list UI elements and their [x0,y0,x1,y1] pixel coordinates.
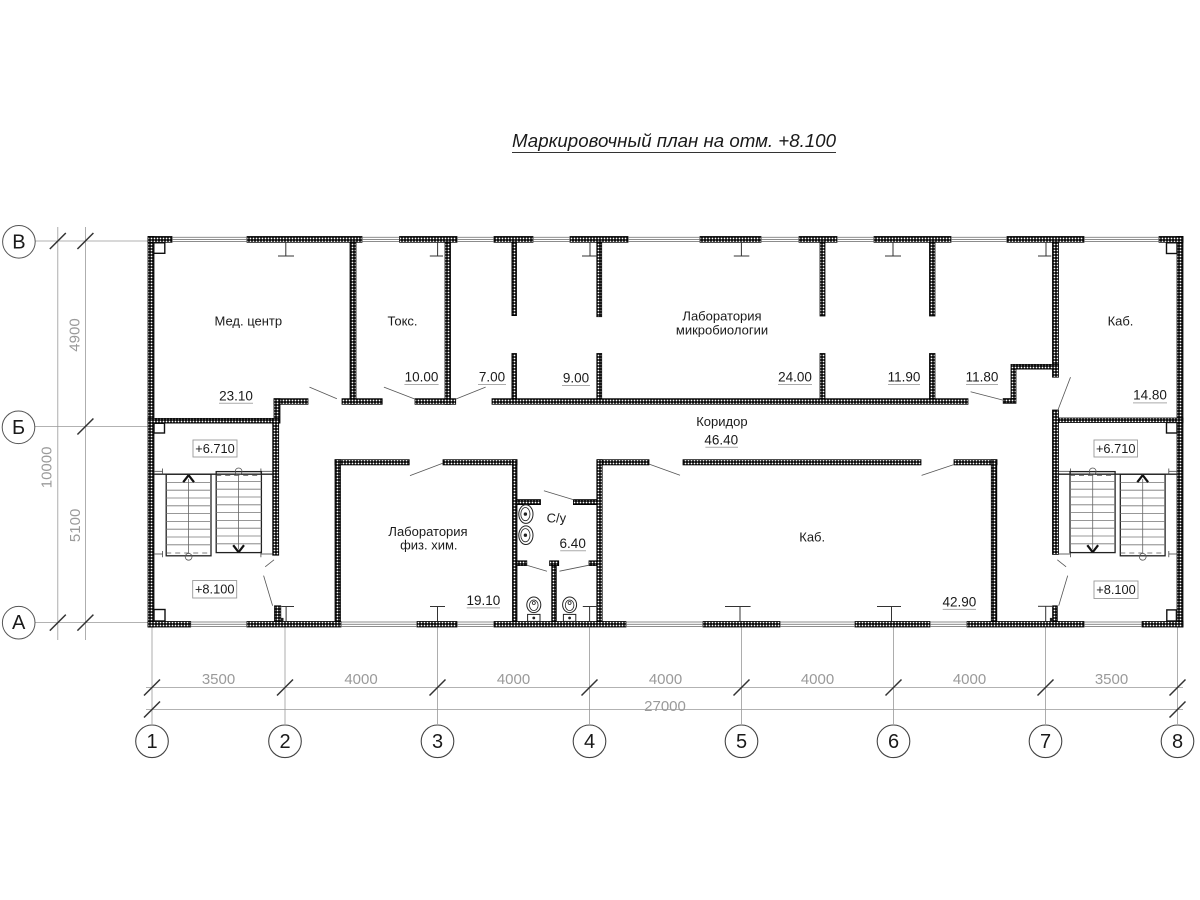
svg-text:10000: 10000 [39,447,56,489]
svg-text:6.40: 6.40 [560,536,586,551]
svg-text:Мед. центр: Мед. центр [214,314,282,329]
svg-text:19.10: 19.10 [467,593,501,608]
svg-text:3500: 3500 [202,671,235,688]
svg-text:физ. хим.: физ. хим. [400,537,457,552]
svg-text:4: 4 [584,731,595,753]
svg-text:Маркировочный план на отм. +8.: Маркировочный план на отм. +8.100 [512,130,837,151]
svg-text:2: 2 [279,731,290,753]
svg-text:Коридор: Коридор [696,414,747,429]
svg-text:14.80: 14.80 [1133,387,1167,402]
svg-text:С/у: С/у [547,511,567,526]
svg-text:4000: 4000 [953,671,986,688]
svg-text:+8.100: +8.100 [1096,582,1136,597]
svg-text:11.90: 11.90 [888,370,921,385]
svg-text:9.00: 9.00 [563,371,589,386]
svg-text:23.10: 23.10 [219,388,253,403]
svg-text:+6.710: +6.710 [195,441,235,456]
svg-text:4900: 4900 [67,318,84,351]
svg-text:микробиологии: микробиологии [676,323,768,338]
svg-text:8: 8 [1172,731,1183,753]
svg-text:Б: Б [12,417,25,439]
svg-text:46.40: 46.40 [704,432,738,447]
svg-text:7: 7 [1040,731,1051,753]
svg-text:3500: 3500 [1095,671,1128,688]
svg-text:7.00: 7.00 [479,370,505,385]
svg-text:А: А [12,612,26,634]
svg-text:27000: 27000 [644,698,686,715]
svg-text:Каб.: Каб. [799,529,825,544]
svg-text:3: 3 [432,731,443,753]
svg-text:5: 5 [736,731,747,753]
svg-text:11.80: 11.80 [966,370,999,385]
svg-text:5100: 5100 [67,509,84,542]
svg-text:Лаборатория: Лаборатория [682,309,761,324]
svg-text:4000: 4000 [801,671,834,688]
svg-text:6: 6 [888,731,899,753]
svg-text:42.90: 42.90 [943,594,977,609]
svg-text:1: 1 [146,731,157,753]
svg-text:4000: 4000 [344,671,377,688]
svg-text:Токс.: Токс. [387,314,417,329]
svg-text:4000: 4000 [497,671,530,688]
svg-text:24.00: 24.00 [778,370,812,385]
svg-text:4000: 4000 [649,671,682,688]
svg-text:+8.100: +8.100 [195,582,235,597]
svg-text:+6.710: +6.710 [1096,441,1136,456]
svg-text:Каб.: Каб. [1108,314,1134,329]
svg-text:10.00: 10.00 [405,370,439,385]
svg-text:В: В [12,231,25,253]
